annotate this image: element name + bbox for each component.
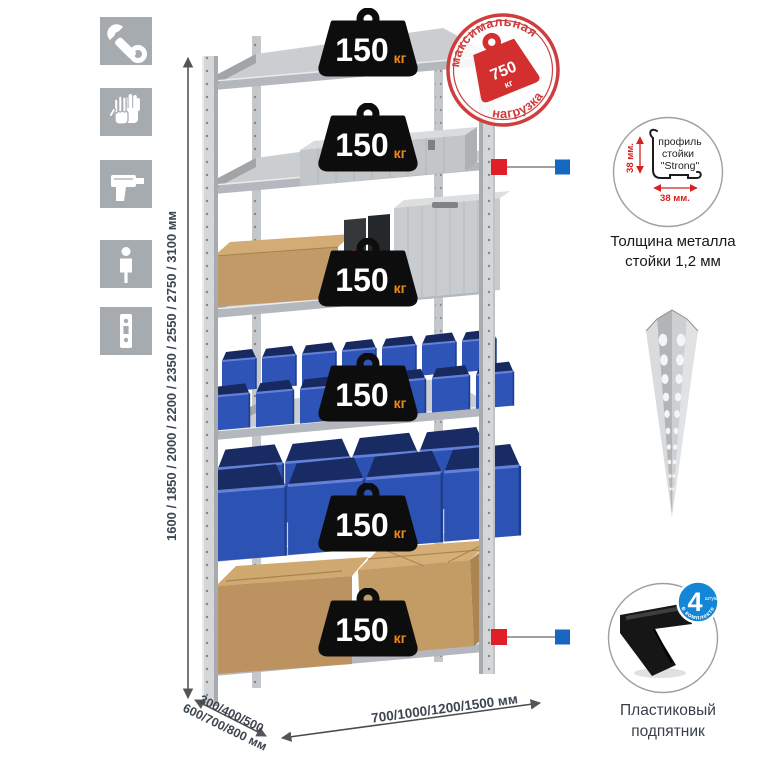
shelf-load-badge-3: 150 кг xyxy=(303,238,433,310)
load-unit: кг xyxy=(394,395,407,411)
feature-icon-person xyxy=(100,240,152,288)
load-unit: кг xyxy=(394,525,407,541)
load-value: 150 xyxy=(335,377,388,413)
drill-icon xyxy=(100,160,152,208)
post-profile-icon xyxy=(100,307,152,355)
profile-caption: Толщина металла стойки 1,2 мм xyxy=(593,232,753,272)
load-value: 150 xyxy=(335,262,388,298)
max-load-stamp: максимальная нагрузка 750 кг xyxy=(437,4,569,136)
load-value: 150 xyxy=(335,612,388,648)
feature-icon-drill xyxy=(100,160,152,208)
foot-count-unit: штуки xyxy=(705,596,719,602)
height-dimension-label: 1600 / 1850 / 2000 / 2200 / 2350 / 2550 … xyxy=(164,96,180,656)
profile-label-1: профиль xyxy=(658,136,702,148)
shelf-load-badge-1: 150 кг xyxy=(303,8,433,80)
profile-dim-horizontal: 38 мм. xyxy=(660,193,690,204)
load-unit: кг xyxy=(394,50,407,66)
plastic-foot-detail: 4 штуки в комплекте xyxy=(598,573,728,703)
gloves-icon xyxy=(100,88,152,136)
profile-callout-connector xyxy=(491,159,570,175)
load-unit: кг xyxy=(394,630,407,646)
feature-icon-post-profile xyxy=(100,307,152,355)
profile-caption-line2: стойки 1,2 мм xyxy=(593,252,753,272)
angle-post-image xyxy=(597,295,747,535)
shelf-load-badge-2: 150 кг xyxy=(303,103,433,175)
foot-callout-connector xyxy=(491,629,570,645)
feature-icon-gloves xyxy=(100,88,152,136)
shelving-rack-poster: 150 кг 150 кг 150 кг 150 кг 150 кг 150 к… xyxy=(0,0,765,765)
included-count-badge: 4 штуки в комплекте xyxy=(678,582,720,623)
profile-label-3: "Strong" xyxy=(661,160,700,172)
profile-dim-vertical: 38 мм. xyxy=(625,143,636,173)
feature-icon-wrench xyxy=(100,17,152,65)
load-unit: кг xyxy=(394,280,407,296)
load-value: 150 xyxy=(335,127,388,163)
shelf-load-badge-4: 150 кг xyxy=(303,353,433,425)
load-value: 150 xyxy=(335,32,388,68)
post-profile-detail: 38 мм. 38 мм. профиль стойки "Strong" xyxy=(603,107,733,237)
person-icon xyxy=(100,240,152,288)
load-value: 150 xyxy=(335,507,388,543)
foot-caption-line1: Пластиковый xyxy=(588,700,748,721)
foot-count: 4 xyxy=(687,587,702,617)
wrench-icon xyxy=(100,17,152,65)
shelf-load-badge-6: 150 кг xyxy=(303,588,433,660)
foot-caption-line2: подпятник xyxy=(588,721,748,742)
profile-label-2: стойки xyxy=(662,148,694,160)
shelf-load-badge-5: 150 кг xyxy=(303,483,433,555)
profile-caption-line1: Толщина металла xyxy=(593,232,753,252)
foot-caption: Пластиковый подпятник xyxy=(588,700,748,742)
load-unit: кг xyxy=(394,145,407,161)
